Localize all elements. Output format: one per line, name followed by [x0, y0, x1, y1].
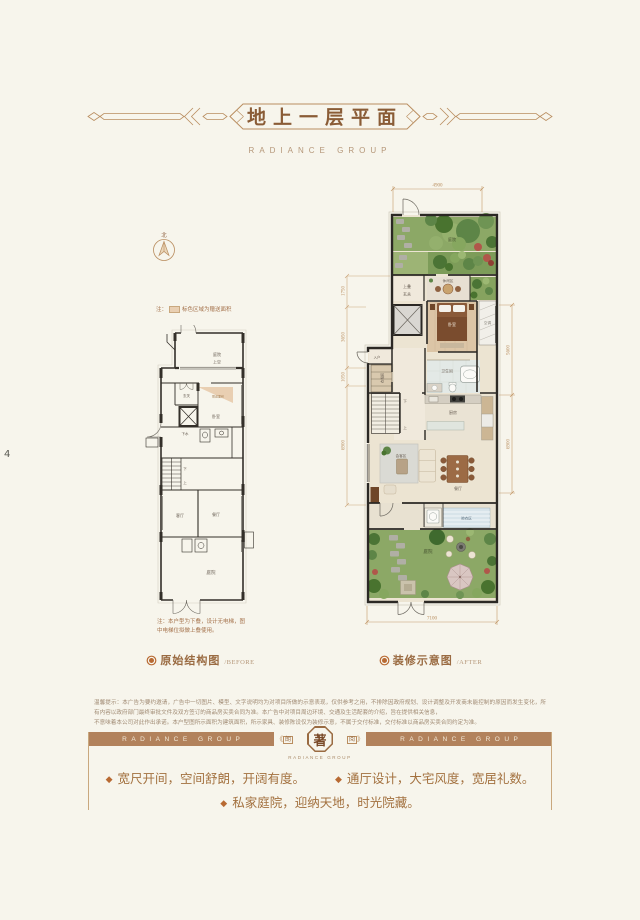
banner-brand-right: RADIANCE GROUP: [396, 736, 523, 743]
page-title: 地上一层平面: [247, 106, 403, 129]
room-label: 晾衣区: [461, 516, 472, 521]
right-diamond-icon: [540, 113, 552, 121]
room-label: 厨房: [449, 409, 457, 415]
before-note-line1: 注：本户型为下叠，设计无电梯，图: [157, 618, 257, 627]
emblem-badge: 著: [307, 726, 333, 752]
emblem-open-quote: 《: [276, 735, 283, 743]
legend-swatch-icon: [169, 306, 180, 313]
disclaimer-line1: 温馨提示：本广告为要约邀请，广告中一切图片、模型、文字说明均为对项目所做的示意表…: [94, 698, 546, 718]
selling-points-row2: ◆私家庭院，迎纳天地，时光院藏。: [0, 792, 640, 811]
room-label: 衣帽间: [380, 372, 385, 383]
before-plan-note: 注：本户型为下叠，设计无电梯，图 中电梯位拟做上叠使用。: [157, 618, 257, 637]
after-plan: 庭院 上叠 玄关 休闲区 卧室 空调 入户 衣帽间 卫生间 下 上 厨房 会客区…: [330, 175, 530, 630]
emblem-right-char: 阅: [347, 736, 357, 744]
room-label: 庭院: [448, 236, 456, 242]
selling-point-text: 私家庭院，迎纳天地，时光院藏。: [232, 796, 420, 810]
room-label: 卧室: [448, 321, 456, 327]
emblem-center-char: 著: [309, 728, 332, 751]
compass-icon: 北: [146, 228, 182, 264]
room-label: 餐厅: [454, 485, 462, 491]
brand-subtitle: RADIANCE GROUP: [0, 146, 640, 155]
bullet-icon: ◆: [106, 774, 113, 784]
room-label: 下水: [182, 431, 189, 436]
selling-point-text: 通厅设计，大宅风度，宽居礼数。: [347, 772, 535, 786]
brand-emblem: 《朗 著 阅》 RADIANCE GROUP: [274, 732, 366, 746]
selling-point-text: 宽尺开间，空间舒朗，开阔有度。: [117, 772, 305, 786]
before-caption: 原始结构图 /BEFORE: [132, 651, 272, 669]
room-label: 下: [403, 400, 407, 404]
dim-bottom: 7100: [427, 617, 438, 622]
legend-text: 标色区域为赠送面积: [182, 307, 232, 313]
room-label: 空调: [484, 320, 492, 325]
room-label: 卫生间: [441, 369, 453, 374]
before-caption-en: /BEFORE: [224, 659, 254, 666]
bullet-icon: ◆: [220, 798, 227, 808]
selling-points-row1: ◆宽尺开间，空间舒朗，开阔有度。 ◆通厅设计，大宅风度，宽居礼数。: [0, 768, 640, 787]
before-note-line2: 中电梯位拟做上叠使用。: [157, 627, 257, 636]
room-label: 入户: [374, 355, 381, 360]
banner-bar-left: RADIANCE GROUP: [88, 732, 274, 746]
room-label: 赠送面积: [212, 394, 224, 399]
caption-bullet-icon: [382, 658, 387, 663]
disclaimer: 温馨提示：本广告为要约邀请，广告中一切图片、模型、文字说明均为对项目所做的示意表…: [94, 698, 546, 728]
room-label: 庭院: [207, 569, 216, 576]
room-label: 庭院: [424, 548, 433, 555]
emblem-left-char: 朗: [283, 736, 293, 744]
room-label: 休闲区: [443, 278, 454, 283]
banner-bar-right: RADIANCE GROUP: [366, 732, 552, 746]
room-label: 庭院: [213, 351, 221, 357]
banner-brand-left: RADIANCE GROUP: [118, 736, 245, 743]
emblem-left-group: 《朗: [276, 734, 293, 744]
room-label: 上叠: [403, 283, 411, 289]
legend-prefix: 注：: [156, 307, 167, 313]
left-diamond-icon: [88, 113, 100, 121]
selling-point: ◆通厅设计，大宅风度，宽居礼数。: [335, 768, 534, 787]
emblem-right-group: 阅》: [347, 734, 364, 744]
legend-note: 注：标色区域为赠送面积: [156, 305, 232, 313]
room-label: 玄关: [183, 393, 190, 398]
emblem-subtitle: RADIANCE GROUP: [288, 755, 351, 760]
room-label: 上: [183, 480, 187, 485]
room-label: 餐厅: [212, 511, 220, 517]
room-label: 上: [403, 425, 407, 430]
emblem-close-quote: 》: [357, 735, 364, 743]
selling-point: ◆私家庭院，迎纳天地，时光院藏。: [220, 792, 419, 811]
room-label: 客厅: [176, 512, 184, 518]
dim-right-2: 6900: [507, 439, 512, 450]
room-label: 会客区: [396, 453, 407, 458]
after-caption: 装修示意图 /AFTER: [362, 651, 502, 669]
brand-banner: RADIANCE GROUP 《朗 著 阅》 RADIANCE GROUP RA…: [88, 732, 552, 746]
dim-left-4: 6900: [342, 440, 347, 451]
compass-north-label: 北: [161, 231, 167, 239]
room-label: 卧室: [212, 413, 220, 419]
dim-right-1: 5600: [507, 345, 512, 356]
caption-bullet-icon: [149, 658, 154, 663]
page-number: 4: [4, 449, 10, 460]
dim-top: 4900: [433, 184, 444, 189]
after-caption-en: /AFTER: [457, 659, 482, 666]
bullet-icon: ◆: [335, 774, 342, 784]
dim-left-1: 1750: [342, 286, 347, 297]
dim-left-3: 1050: [342, 372, 347, 383]
selling-point: ◆宽尺开间，空间舒朗，开阔有度。: [106, 768, 305, 787]
before-caption-text: 原始结构图: [160, 655, 220, 667]
before-plan: 庭院 上空 玄关 赠送面积 卧室 下水 下 上 客厅 餐厅 庭院: [145, 325, 255, 650]
room-label: 上空: [213, 359, 221, 365]
room-label: 玄关: [403, 291, 411, 297]
room-label: 下: [183, 467, 187, 471]
page: 4 地上一层平面 RADIANCE GROUP 北 注：标色区域为赠送面积: [0, 0, 640, 920]
after-caption-text: 装修示意图: [393, 655, 453, 667]
dim-left-2: 3650: [342, 332, 347, 343]
